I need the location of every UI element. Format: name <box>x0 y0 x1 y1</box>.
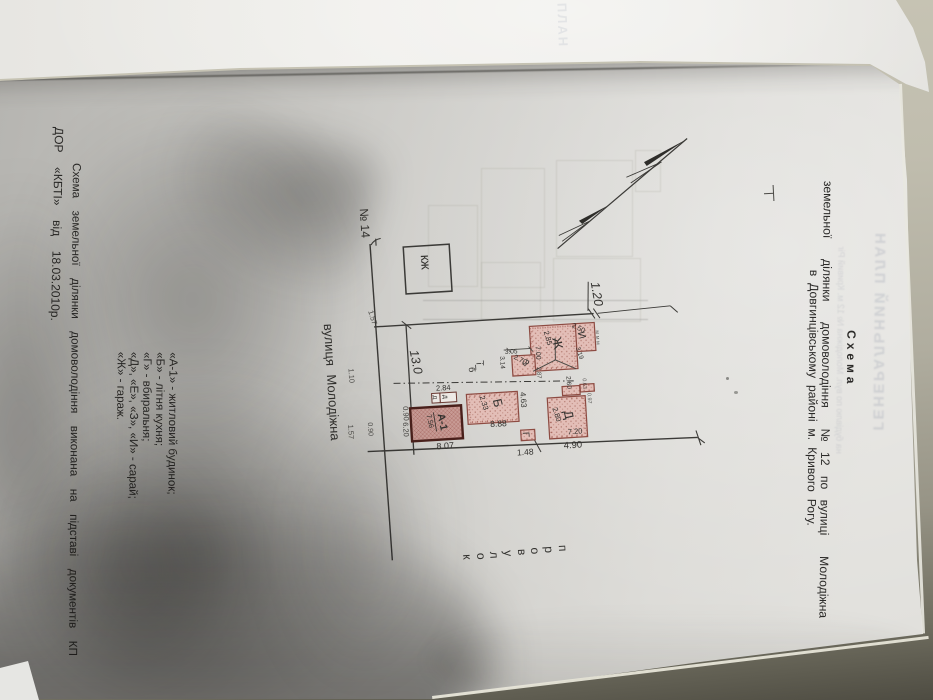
svg-text:1.57: 1.57 <box>346 424 356 439</box>
svg-text:4.90: 4.90 <box>563 439 582 451</box>
svg-text:0.90: 0.90 <box>366 422 374 436</box>
svg-text:1.20: 1.20 <box>588 281 606 307</box>
svg-text:п: п <box>556 544 570 551</box>
svg-text:вулиця Молодіжна: вулиця Молодіжна <box>321 323 343 441</box>
svg-text:1.10: 1.10 <box>347 368 357 383</box>
svg-text:8.07: 8.07 <box>436 440 454 451</box>
svg-text:2.60: 2.60 <box>564 376 572 389</box>
svg-text:№ 14: № 14 <box>357 208 373 239</box>
svg-text:1.48: 1.48 <box>517 446 534 457</box>
svg-text:4.63: 4.63 <box>518 392 528 409</box>
svg-text:1.57: 1.57 <box>366 309 379 326</box>
svg-text:р: р <box>542 546 556 554</box>
svg-text:7.00: 7.00 <box>534 346 542 360</box>
svg-text:д: д <box>431 395 438 399</box>
svg-text:м м м: м м м <box>594 330 601 345</box>
svg-text:2.84: 2.84 <box>436 383 451 393</box>
svg-text:і: і <box>474 362 484 365</box>
svg-text:3.05: 3.05 <box>505 348 518 356</box>
svg-text:6.20: 6.20 <box>401 422 411 437</box>
svg-text:в: в <box>515 548 529 555</box>
svg-text:0.90: 0.90 <box>401 406 411 421</box>
svg-text:2.87: 2.87 <box>535 367 542 380</box>
svg-text:д: д <box>441 395 448 400</box>
svg-text:3.14: 3.14 <box>498 356 506 369</box>
svg-text:к: к <box>460 554 474 561</box>
svg-text:у: у <box>501 550 515 557</box>
svg-text:0.63: 0.63 <box>581 378 588 389</box>
svg-text:Г: Г <box>520 432 531 438</box>
svg-text:о: о <box>474 552 488 560</box>
svg-text:кж: кж <box>418 254 434 270</box>
svg-text:0.97: 0.97 <box>585 393 592 404</box>
svg-text:8.88: 8.88 <box>490 418 507 429</box>
svg-text:7.20: 7.20 <box>568 426 583 436</box>
